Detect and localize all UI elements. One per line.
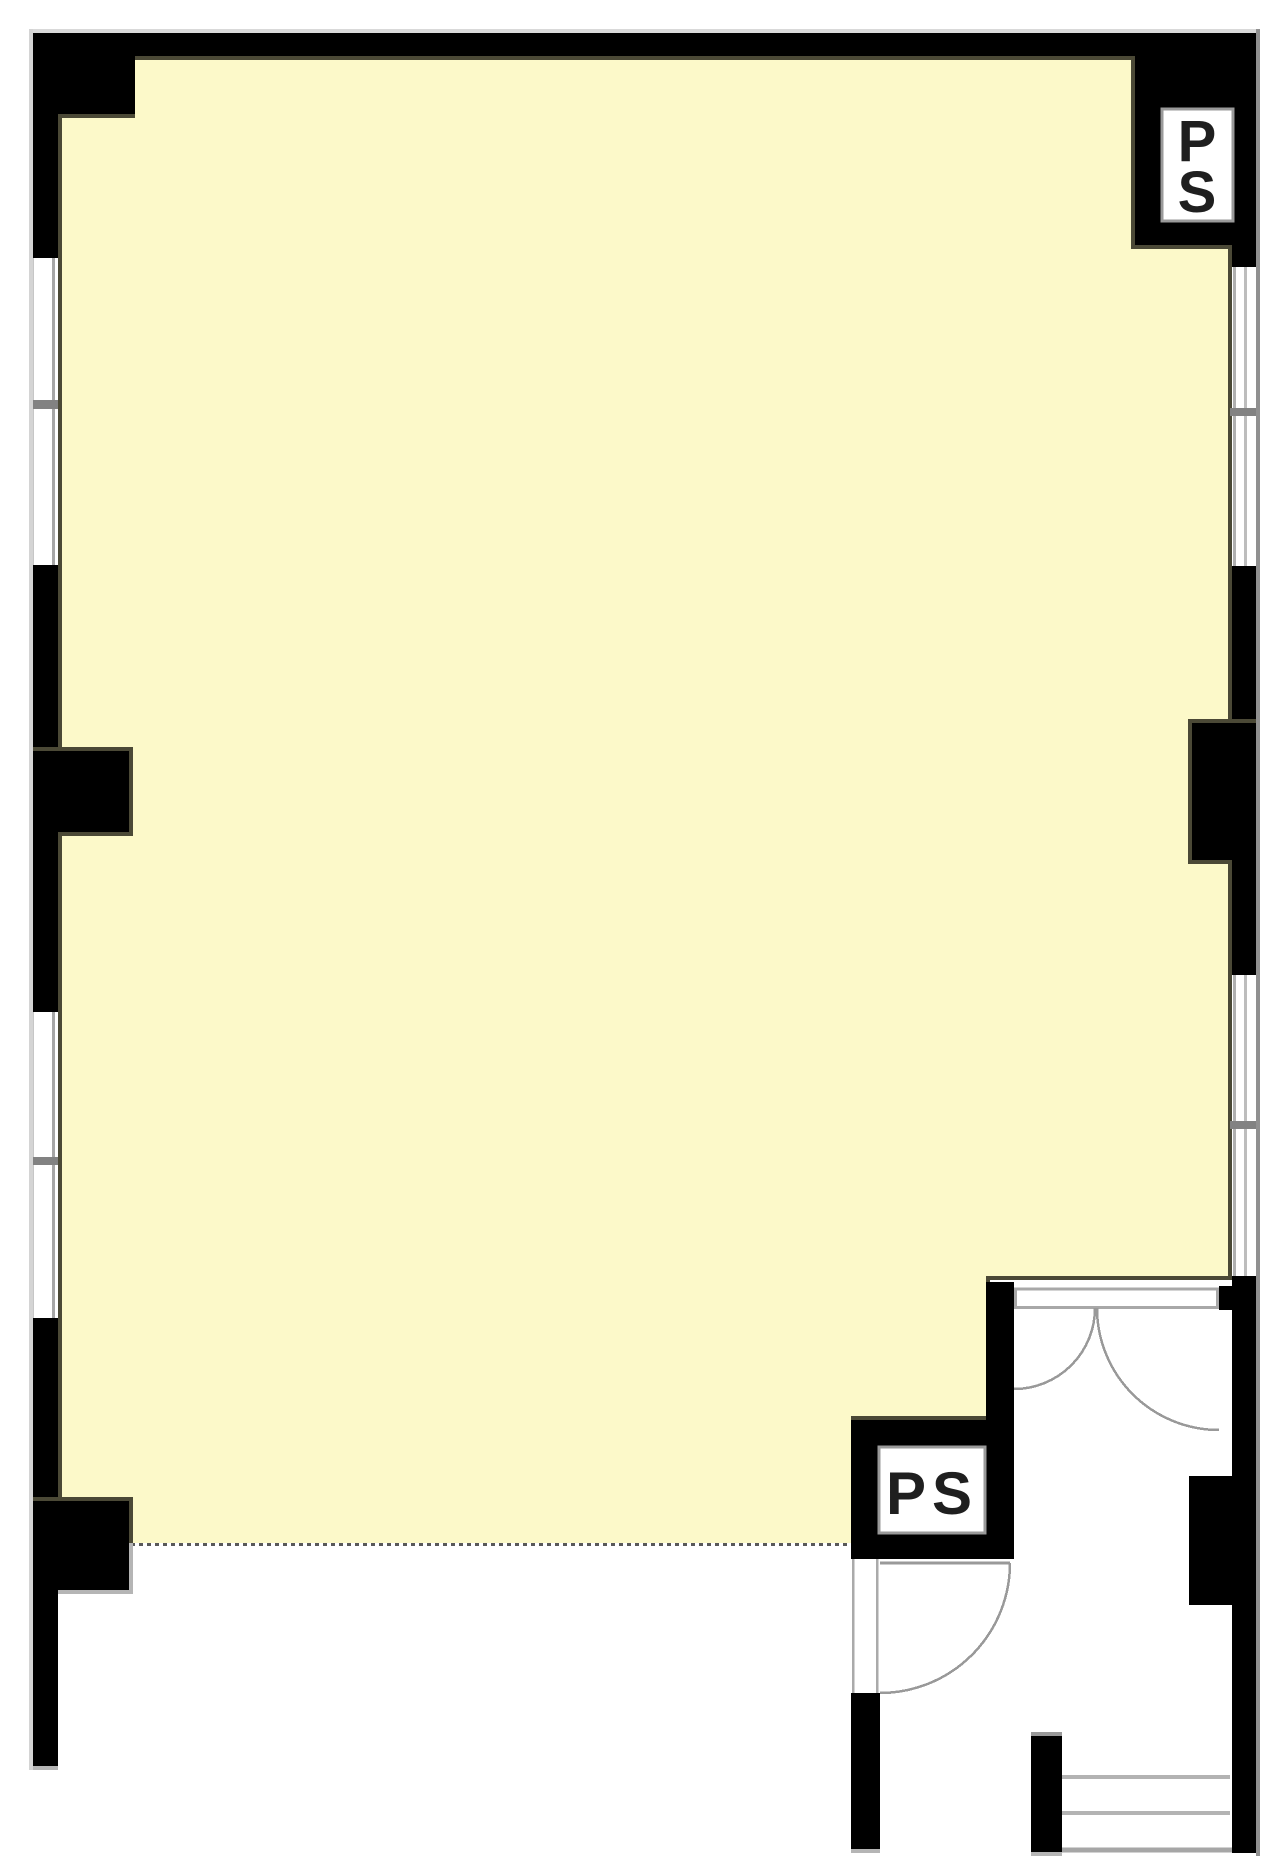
svg-text:S: S (1178, 160, 1217, 225)
svg-text:PS: PS (886, 1460, 978, 1527)
